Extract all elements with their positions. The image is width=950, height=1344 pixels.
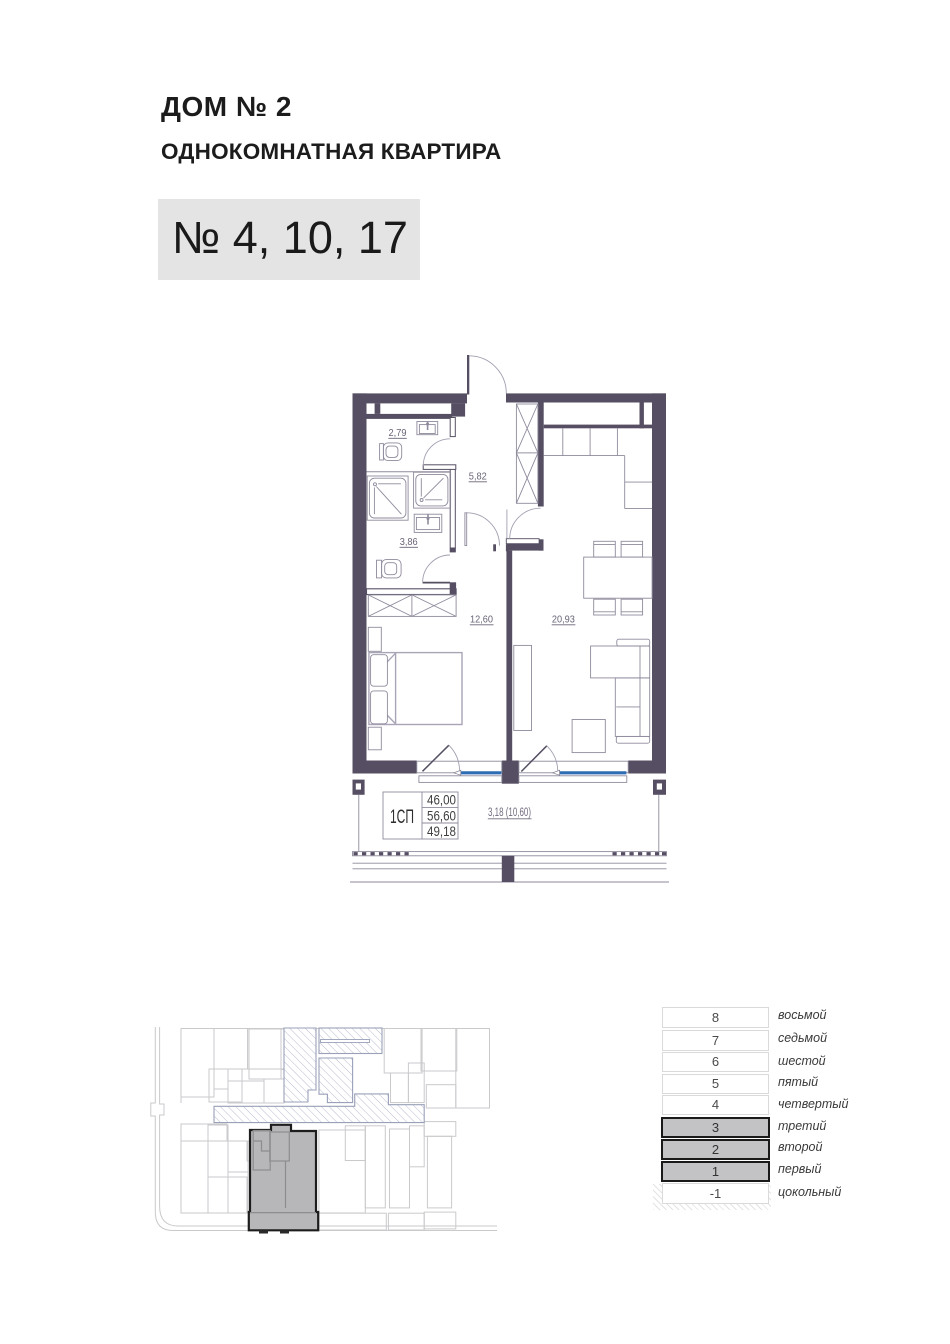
svg-text:1СП: 1СП — [390, 806, 414, 828]
svg-text:20,93: 20,93 — [552, 614, 575, 626]
svg-text:2,79: 2,79 — [389, 427, 407, 439]
svg-text:3,86: 3,86 — [400, 536, 418, 548]
svg-text:5,82: 5,82 — [469, 471, 487, 483]
svg-text:3,18 (10,60): 3,18 (10,60) — [488, 807, 531, 819]
svg-text:46,00: 46,00 — [427, 793, 456, 808]
svg-text:12,60: 12,60 — [470, 614, 493, 626]
svg-text:49,18: 49,18 — [427, 824, 456, 839]
svg-text:56,60: 56,60 — [427, 808, 456, 823]
